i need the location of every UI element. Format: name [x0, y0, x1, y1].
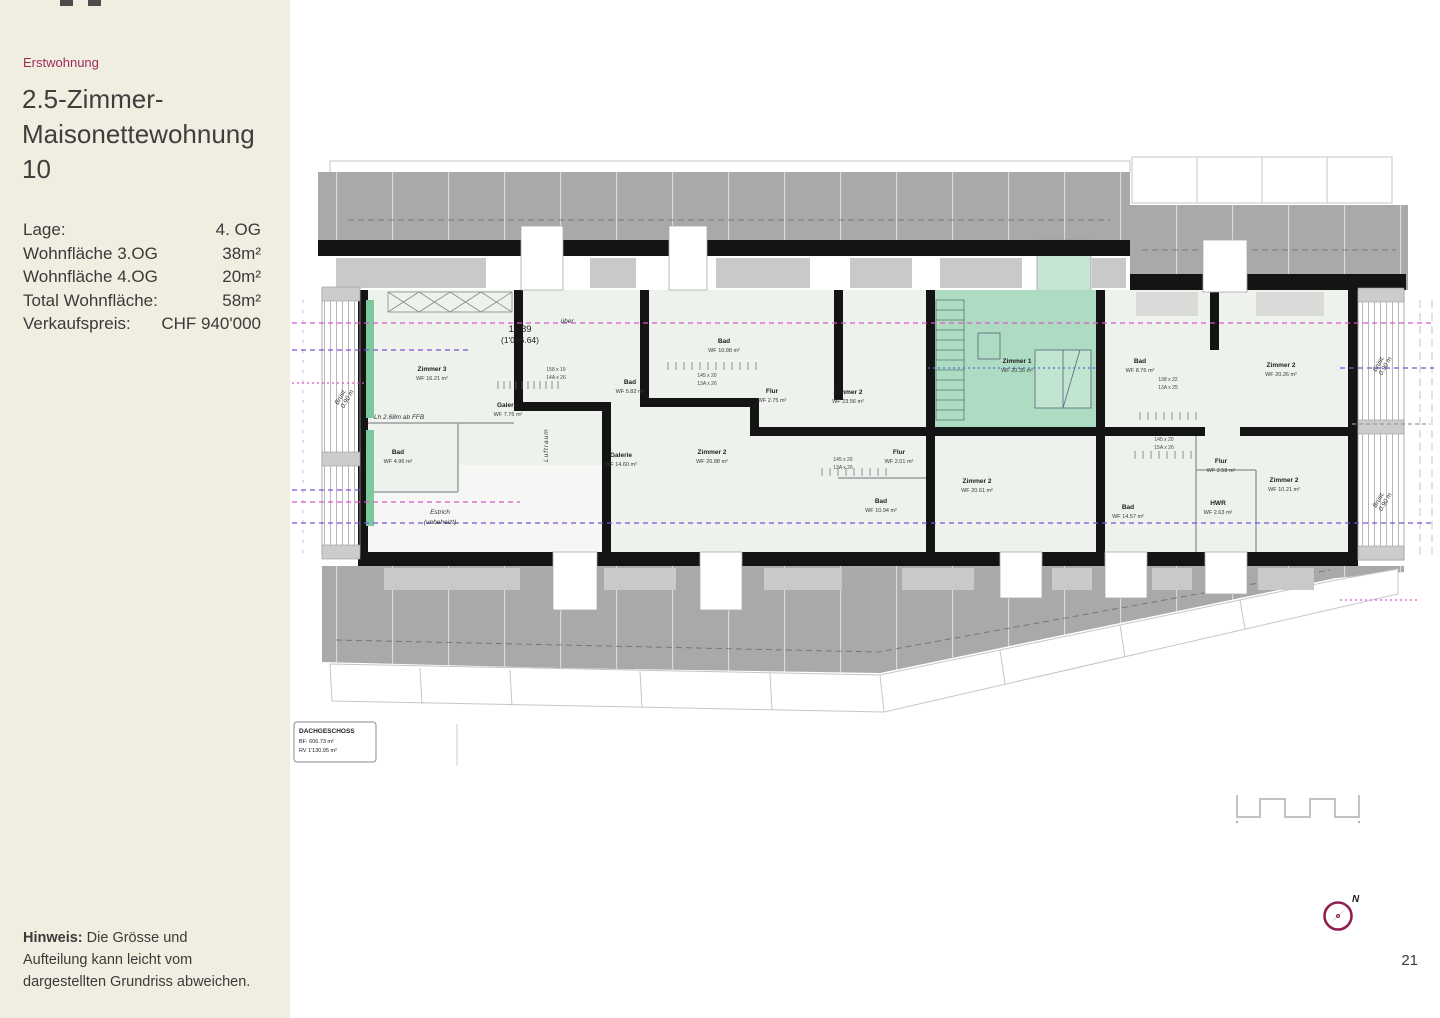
svg-text:Brüst.: Brüst.: [1372, 491, 1387, 509]
room-label-bad-4: BadWF 10.94 m²: [865, 498, 897, 514]
detail-value: 4. OG: [216, 218, 261, 242]
page-title-line2: Maisonettewohnung 10: [22, 117, 290, 187]
room-label-zimmer3: Zimmer 3WF 16.21 m²: [416, 366, 448, 382]
estrich-sub: (unbeheizt): [424, 519, 457, 526]
balcony-left: [322, 287, 374, 559]
room-label-flur-3: FlurWF 2.58 m²: [1207, 458, 1236, 474]
elevation-ref: (1'095.64): [501, 335, 539, 345]
svg-text:13A x 25: 13A x 25: [1158, 385, 1178, 391]
highlighted-room-zimmer1: [935, 240, 1096, 427]
stair-dimensions: 158 x 1914A x 26 145 x 2013A x 26 145 x …: [546, 367, 1178, 471]
svg-text:Zimmer 2: Zimmer 2: [1270, 477, 1299, 484]
roof-top: [318, 172, 1408, 290]
room-label-bad-2: BadWF 5.82 m²: [616, 379, 645, 395]
room-label-flur-2: FlurWF 2.01 m²: [885, 449, 914, 465]
roof-bottom: [322, 566, 1404, 673]
wardrobe: [388, 292, 512, 312]
svg-text:Galerie: Galerie: [610, 452, 632, 459]
svg-text:0.90 m: 0.90 m: [340, 388, 356, 409]
svg-text:145 x 20: 145 x 20: [1154, 437, 1173, 443]
elevation-value: 11.89: [508, 324, 531, 335]
room-label-bad-3: BadWF 10.98 m²: [708, 338, 740, 354]
svg-text:WF 4.96 m²: WF 4.96 m²: [384, 459, 413, 465]
svg-text:WF 16.21 m²: WF 16.21 m²: [416, 376, 448, 382]
svg-text:Zimmer 2: Zimmer 2: [1267, 362, 1296, 369]
panel-band: [330, 569, 1398, 712]
svg-text:WF 2.75 m²: WF 2.75 m²: [758, 398, 787, 404]
svg-text:WF 20.61 m²: WF 20.61 m²: [961, 488, 993, 494]
detail-value: CHF 940'000: [161, 312, 261, 336]
svg-text:Bad: Bad: [1122, 504, 1134, 511]
svg-text:WF 20.35 m²: WF 20.35 m²: [1001, 368, 1033, 374]
stair-ticks: [498, 362, 1196, 476]
luftraum-label: Luftraum: [543, 428, 550, 462]
parapet-note-left: Brüst.0.90 m: [334, 385, 356, 410]
svg-text:Zimmer 2: Zimmer 2: [963, 478, 992, 485]
svg-text:145 x 20: 145 x 20: [697, 373, 716, 379]
svg-text:0.90 m: 0.90 m: [1378, 355, 1394, 376]
svg-text:Flur: Flur: [1215, 458, 1228, 465]
section-lines: [292, 323, 1434, 600]
floor-info-bf: BF: 606.73 m²: [299, 739, 334, 745]
svg-text:Brüst.: Brüst.: [334, 388, 349, 406]
room-label-zimmer2-d: Zimmer 2WF 20.26 m²: [1265, 362, 1297, 378]
svg-text:138 x 22: 138 x 22: [1158, 377, 1177, 383]
dormers-top: [336, 258, 1126, 288]
detail-value: 58m²: [222, 289, 261, 313]
balcony-right: [1358, 288, 1404, 560]
apartment-details: Lage: 4. OG Wohnfläche 3.OG 38m² Wohnflä…: [23, 218, 261, 336]
room-label-zimmer1-highlight: Zimmer 1WF 20.35 m²: [1001, 358, 1033, 374]
stair-dim-2: 145 x 2013A x 26: [697, 373, 717, 387]
page-title: 2.5-Zimmer- Maisonettewohnung 10: [22, 82, 290, 187]
svg-text:Bad: Bad: [392, 449, 404, 456]
svg-text:HWR: HWR: [1210, 500, 1226, 507]
annotations: 11.89 (1'095.64) über Lh 2.68m ab FFB Es…: [334, 318, 1394, 526]
svg-text:WF 7.76 m²: WF 7.76 m²: [494, 412, 523, 418]
svg-text:WF 20.26 m²: WF 20.26 m²: [1265, 372, 1297, 378]
svg-text:WF 5.82 m²: WF 5.82 m²: [616, 389, 645, 395]
svg-text:13A x 26: 13A x 26: [697, 381, 717, 387]
svg-text:14A x 26: 14A x 26: [546, 375, 566, 381]
sidebar: Erstwohnung 2.5-Zimmer- Maisonettewohnun…: [0, 0, 290, 1018]
svg-text:WF 8.76 m²: WF 8.76 m²: [1126, 368, 1155, 374]
detail-label: Lage:: [23, 218, 66, 242]
detail-row-preis: Verkaufspreis: CHF 940'000: [23, 312, 261, 336]
over-note: über: [560, 318, 574, 325]
room-label-bad-6: BadWF 14.57 m²: [1112, 504, 1144, 520]
svg-text:WF 10.94 m²: WF 10.94 m²: [865, 508, 897, 514]
room-label-galerie-1: GalerieWF 7.76 m²: [494, 402, 523, 418]
detail-row-flaeche-3og: Wohnfläche 3.OG 38m²: [23, 242, 261, 266]
svg-text:WF 2.58 m²: WF 2.58 m²: [1207, 468, 1236, 474]
room-label-flur-1: FlurWF 2.75 m²: [758, 388, 787, 404]
svg-text:Zimmer 2: Zimmer 2: [698, 449, 727, 456]
partitions: [368, 423, 1256, 552]
room-label-bad-5: BadWF 8.76 m²: [1126, 358, 1155, 374]
svg-text:Zimmer 1: Zimmer 1: [1003, 358, 1032, 365]
page-title-line1: 2.5-Zimmer-: [22, 82, 290, 117]
detail-label: Total Wohnfläche:: [23, 289, 158, 313]
room-label-galerie-2: GalerieWF 14.60 m²: [605, 452, 637, 468]
stair-dim-5: 145 x 2015A x 26: [1154, 437, 1174, 451]
svg-text:13A x 26: 13A x 26: [833, 465, 853, 471]
room-labels: Zimmer 3WF 16.21 m² GalerieWF 7.76 m² Ba…: [384, 338, 1300, 520]
stair-dim-3: 145 x 2013A x 26: [833, 457, 853, 471]
room-label-zimmer2-a: Zimmer 2WF 20.88 m²: [696, 449, 728, 465]
roof-shafts: [521, 226, 1247, 610]
room-label-hwr: HWRWF 2.63 m²: [1204, 500, 1233, 516]
svg-text:WF 14.57 m²: WF 14.57 m²: [1112, 514, 1144, 520]
detail-label: Verkaufspreis:: [23, 312, 131, 336]
estrich-label: Estrich: [430, 509, 450, 516]
svg-text:Flur: Flur: [893, 449, 906, 456]
room-label-zimmer2-b: Zimmer 2WF 23.56 m²: [832, 389, 864, 405]
detail-row-lage: Lage: 4. OG: [23, 218, 261, 242]
svg-text:Bad: Bad: [875, 498, 887, 505]
svg-text:WF 20.88 m²: WF 20.88 m²: [696, 459, 728, 465]
detail-label: Wohnfläche 3.OG: [23, 242, 158, 266]
page-number: 21: [1388, 952, 1418, 969]
rooms-area: [368, 290, 1348, 552]
svg-text:Bad: Bad: [624, 379, 636, 386]
floor-info-box: DACHGESCHOSS BF: 606.73 m² RV 1'130.95 m…: [294, 722, 457, 766]
furniture-zimmer1: [978, 333, 1091, 408]
stair-dim-1: 158 x 1914A x 26: [546, 367, 566, 381]
svg-text:145 x 20: 145 x 20: [833, 457, 852, 463]
svg-text:WF 10.21 m²: WF 10.21 m²: [1268, 487, 1300, 493]
parapet-note-right-2: Brüst.0.90 m: [1372, 488, 1394, 513]
detail-row-total: Total Wohnfläche: 58m²: [23, 289, 261, 313]
stair-in-zimmer1: [936, 300, 964, 420]
detail-value: 38m²: [222, 242, 261, 266]
scale-bar: [1236, 795, 1360, 823]
svg-text:Zimmer 2: Zimmer 2: [834, 389, 863, 396]
svg-text:Bad: Bad: [718, 338, 730, 345]
detail-label: Wohnfläche 4.OG: [23, 265, 158, 289]
svg-text:WF 2.63 m²: WF 2.63 m²: [1204, 510, 1233, 516]
svg-text:Brüst.: Brüst.: [1372, 355, 1387, 373]
svg-text:15A x 26: 15A x 26: [1154, 445, 1174, 451]
parapet-note-right-1: Brüst.0.90 m: [1372, 352, 1394, 377]
floor-info-rv: RV 1'130.95 m²: [299, 748, 337, 754]
height-note: Lh 2.68m ab FFB: [374, 414, 425, 421]
svg-text:Bad: Bad: [1134, 358, 1146, 365]
disclaimer-note: Hinweis: Die Grösse und Aufteilung kann …: [23, 927, 253, 993]
svg-text:158 x 19: 158 x 19: [546, 367, 565, 373]
svg-text:0.90 m: 0.90 m: [1378, 491, 1394, 512]
brochure-page: Erstwohnung 2.5-Zimmer- Maisonettewohnun…: [0, 0, 1440, 1018]
svg-text:WF 2.01 m²: WF 2.01 m²: [885, 459, 914, 465]
detail-value: 20m²: [222, 265, 261, 289]
dormers-bottom: [384, 568, 1314, 590]
stair-dim-4: 138 x 2213A x 25: [1158, 377, 1178, 391]
svg-text:Galerie: Galerie: [497, 402, 519, 409]
roof-outline: [303, 157, 1432, 560]
room-label-zimmer2-e: Zimmer 2WF 10.21 m²: [1268, 477, 1300, 493]
compass-north-label: N: [1352, 894, 1360, 905]
svg-text:Zimmer 3: Zimmer 3: [418, 366, 447, 373]
detail-row-flaeche-4og: Wohnfläche 4.OG 20m²: [23, 265, 261, 289]
svg-text:WF 14.60 m²: WF 14.60 m²: [605, 462, 637, 468]
disclaimer-label: Hinweis:: [23, 930, 83, 946]
room-label-bad-1: BadWF 4.96 m²: [384, 449, 413, 465]
walls: [318, 240, 1406, 566]
compass-icon: N: [1325, 894, 1361, 930]
category-label: Erstwohnung: [23, 55, 99, 70]
svg-text:WF 23.56 m²: WF 23.56 m²: [832, 399, 864, 405]
room-label-zimmer2-c: Zimmer 2WF 20.61 m²: [961, 478, 993, 494]
svg-text:Flur: Flur: [766, 388, 779, 395]
svg-text:WF 10.98 m²: WF 10.98 m²: [708, 348, 740, 354]
floor-info-title: DACHGESCHOSS: [299, 728, 355, 735]
